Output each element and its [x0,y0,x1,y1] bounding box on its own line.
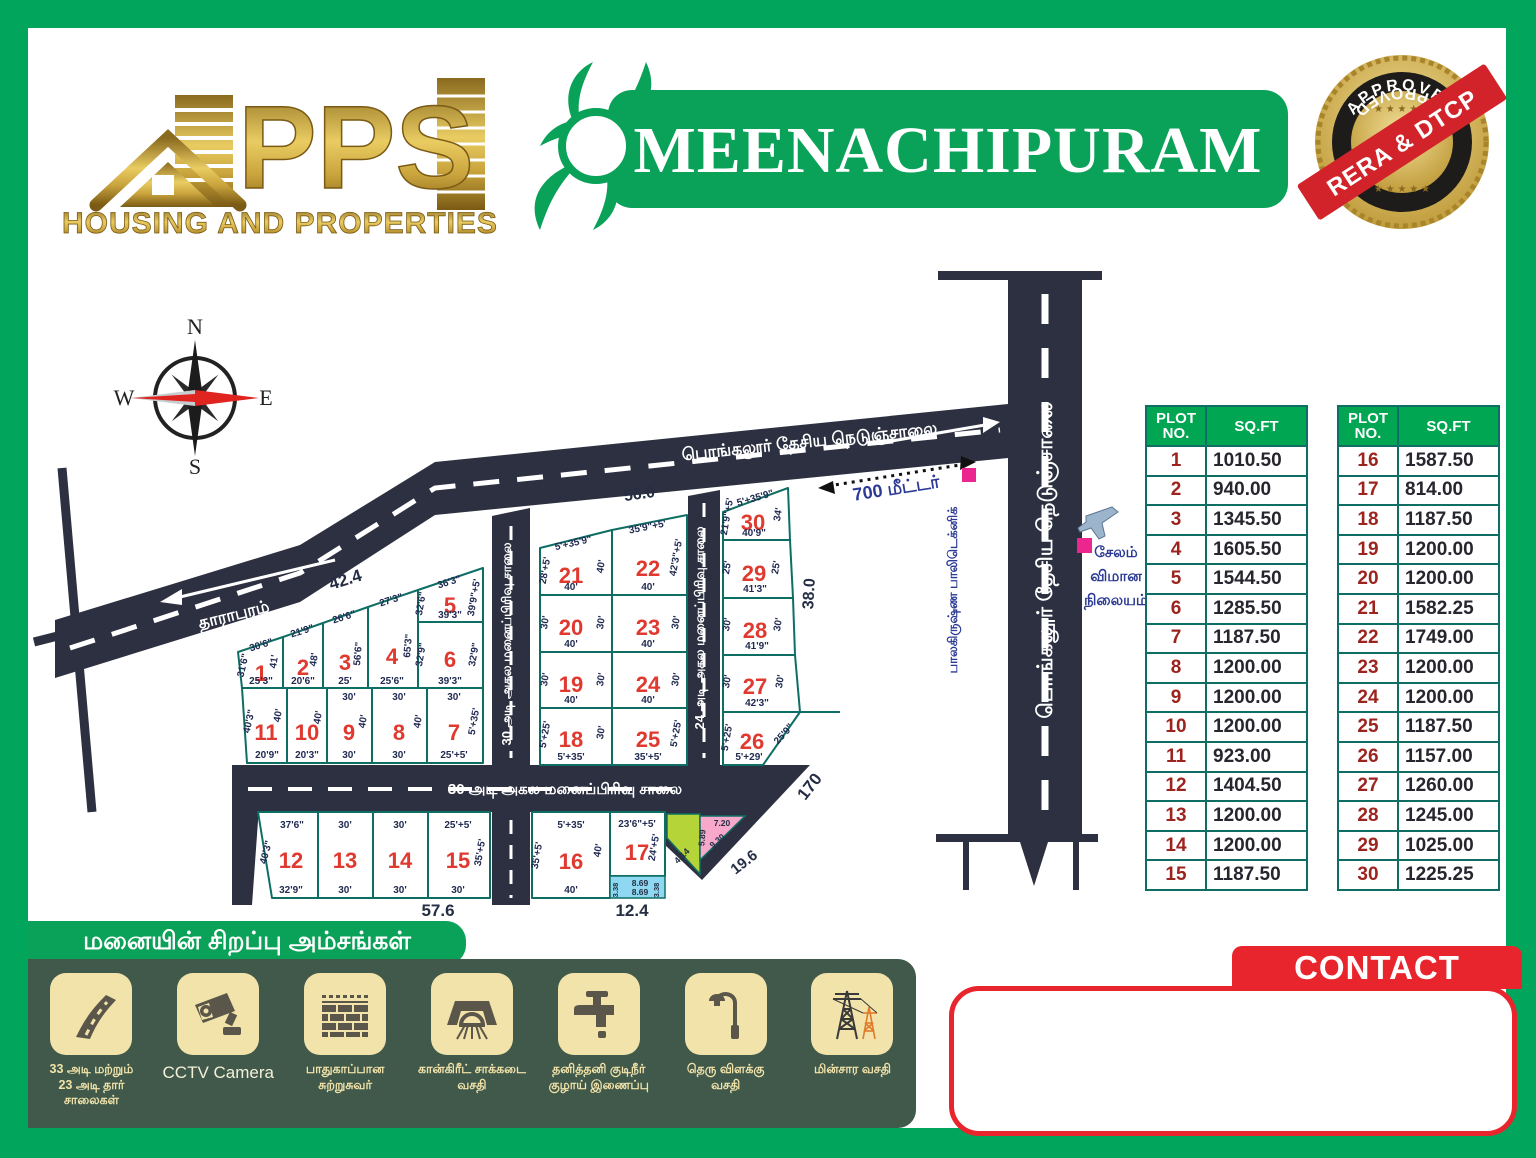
feature-drainage: கான்கிரீட் சாக்கடை வசதி [411,973,533,1093]
table-row: 191200.00 [1338,535,1499,565]
sqft-cell: 1200.00 [1398,564,1499,594]
project-title: MEENACHIPURAM [634,114,1263,187]
plot-dimension: 30' [338,885,352,896]
poster-canvas: PPS HOUSING AND PROPERTIES MEENACHIPURAM… [28,28,1506,1128]
table-row: 81200.00 [1146,653,1307,683]
airport-label-3: நிலையம் [1083,592,1148,610]
plot-no-cell: 30 [1338,860,1398,890]
plot-dimension: 30' [392,750,406,761]
table-row: 211582.25 [1338,594,1499,624]
sqft-cell: 1200.00 [1206,683,1307,713]
plot-dimension: 34' [772,507,785,522]
table-header: SQ.FT [1206,406,1307,446]
marker-pink [1077,538,1092,553]
table-row: 41605.50 [1146,535,1307,565]
plot-dimension: 25'6" [380,676,404,687]
plot-no-cell: 22 [1338,624,1398,654]
sqft-cell: 1587.50 [1398,446,1499,476]
feature-label: தனித்தனி குடிநீர் குழாய் இணைப்பு [549,1062,649,1093]
table-row: 71187.50 [1146,624,1307,654]
plot-dimension: 30' [342,692,356,703]
table-row: 251187.50 [1338,712,1499,742]
table-row: 141200.00 [1146,831,1307,861]
plot-dimension: 20'3" [295,750,319,761]
plot-number: 20 [559,615,583,640]
compass-s: S [189,454,201,479]
plot-dimension: 40' [312,710,325,725]
compass-e: E [259,385,272,410]
feature-wall: பாதுகாப்பான சுற்றுசுவர் [284,973,406,1093]
sqft-cell: 1260.00 [1398,772,1499,802]
table-row: 11010.50 [1146,446,1307,476]
sqft-cell: 1187.50 [1398,712,1499,742]
drainage-icon [431,973,513,1055]
table-row: 241200.00 [1338,683,1499,713]
feature-roads: 33 அடி மற்றும் 23 அடி தார் சாலைகள் [30,973,152,1109]
plot-no-cell: 28 [1338,801,1398,831]
logo-tagline: HOUSING AND PROPERTIES [62,207,498,240]
plot-dimension: 41'9" [745,641,769,652]
plot-dimension: 40' [564,639,578,650]
sqft-cell: 1187.50 [1206,860,1307,890]
airport-label-2: விமான [1090,568,1142,585]
marker-pink [962,468,976,482]
feature-label: கான்கிரீட் சாக்கடை வசதி [418,1062,526,1093]
plot-number: 9 [343,720,355,745]
table-row: 61285.50 [1146,594,1307,624]
plot-number: 24 [636,672,661,697]
plot-dimension: 25'+5' [440,750,467,761]
road24-label: 24 அடி அகல மனைப்பிரிவு சாலை [692,526,708,729]
plot-number: 16 [559,849,583,874]
sqft-cell: 1245.00 [1398,801,1499,831]
plot-dimension: 40' [564,582,578,593]
plot-no-cell: 11 [1146,742,1206,772]
electric-tower-icon [811,973,893,1055]
contact-details-box [949,986,1517,1136]
plot-number: 7 [448,720,460,745]
distance-label: 700 மீட்டர் [851,471,941,505]
feature-label: பாதுகாப்பான சுற்றுசுவர் [306,1062,384,1093]
plot-number: 28 [743,618,767,643]
plot-no-cell: 12 [1146,772,1206,802]
compass-n: N [187,314,203,339]
feature-water: தனித்தனி குடிநீர் குழாய் இணைப்பு [538,973,660,1093]
plot-dimension: 40' [564,695,578,706]
sqft-cell: 1025.00 [1398,831,1499,861]
feature-label: 33 அடி மற்றும் 23 அடி தார் சாலைகள் [30,1062,152,1109]
plot-area-table-1: PLOT NO.SQ.FT11010.502940.0031345.504160… [1145,405,1308,891]
plot-dimension: 30' [451,885,465,896]
plot-no-cell: 13 [1146,801,1206,831]
plot-dimension: 23'6"+5' [618,819,656,830]
table-row: 31345.50 [1146,505,1307,535]
sqft-cell: 1605.50 [1206,535,1307,565]
plot-dimension: 40' [595,559,608,574]
strip-dim: 3.38 [652,883,661,898]
compound-wall-icon [304,973,386,1055]
sqft-cell: 1200.00 [1206,712,1307,742]
feature-label: மின்சார வசதி [814,1062,891,1078]
vertical-highway-label: பொங்கலூர் தேசிய நெடுஞ்சாலை [1034,401,1060,718]
plot-dimension: 39'3" [438,610,462,621]
sqft-cell: 940.00 [1206,476,1307,506]
plot-dimension: 40' [592,843,605,858]
strip-dim: 3.38 [611,883,620,898]
table-row: 181187.50 [1338,505,1499,535]
plot-no-cell: 16 [1338,446,1398,476]
plot-dimension: 30' [595,672,608,687]
plot-no-cell: 20 [1338,564,1398,594]
plot-no-cell: 9 [1146,683,1206,713]
measure-56-0: 56.0 [623,484,656,505]
table-row: 131200.00 [1146,801,1307,831]
plot-area-table-2: PLOT NO.SQ.FT161587.5017814.00181187.501… [1337,405,1500,891]
plot-dimension: 5'+35' [557,752,584,763]
table-row: 151187.50 [1146,860,1307,890]
table-row: 161587.50 [1338,446,1499,476]
plot-no-cell: 5 [1146,564,1206,594]
plot-number: 8 [393,720,405,745]
sqft-cell: 1285.50 [1206,594,1307,624]
plot-no-cell: 2 [1146,476,1206,506]
sqft-cell: 1225.25 [1398,860,1499,890]
plot-dimension: 40' [641,582,655,593]
sqft-cell: 1200.00 [1206,831,1307,861]
plot-dimension: 40' [357,714,370,729]
left-road-stub [232,765,262,905]
measure-19-6: 19.6 [727,847,760,878]
table-row: 11923.00 [1146,742,1307,772]
sqft-cell: 1345.50 [1206,505,1307,535]
polytechnic-label: பாலகிருஷ்ண பாலிடெக்னிக் [945,506,961,674]
plot-no-cell: 6 [1146,594,1206,624]
plot-dimension: 25'3" [249,676,273,687]
plot-number: 12 [279,848,303,873]
table-row: 231200.00 [1338,653,1499,683]
table-row: 91200.00 [1146,683,1307,713]
plot-dimension: 65'3" [402,633,415,658]
table-row: 291025.00 [1338,831,1499,861]
features-panel: 33 அடி மற்றும் 23 அடி தார் சாலைகள் CCTV … [28,959,916,1128]
plot-dimension: 40' [641,639,655,650]
sqft-cell: 1582.25 [1398,594,1499,624]
plot-dimension: 39'3" [438,676,462,687]
table-row: 261157.00 [1338,742,1499,772]
road30-left-label: 30 அடி அகல மனைப்பிரிவு சாலை [499,542,515,745]
measure-12-4: 12.4 [615,901,649,920]
plot-no-cell: 8 [1146,653,1206,683]
sqft-cell: 1200.00 [1206,653,1307,683]
plot-number: 19 [559,672,583,697]
plot-dimension: 40' [412,714,425,729]
wedge-green [667,814,700,874]
plot-dimension: 48' [308,652,321,667]
plot-dimension: 30' [595,725,608,740]
feature-streetlight: தெரு விளக்கு வசதி [665,973,787,1093]
measure-38-0: 38.0 [800,578,819,610]
plot-dimension: 40' [272,708,285,723]
plot-no-cell: 21 [1338,594,1398,624]
plot-number: 15 [446,848,470,873]
table-row: 221749.00 [1338,624,1499,654]
sqft-cell: 1404.50 [1206,772,1307,802]
plot-no-cell: 19 [1338,535,1398,565]
plot-dimension: 25' [338,676,352,687]
plot-no-cell: 4 [1146,535,1206,565]
plot-no-cell: 27 [1338,772,1398,802]
plot-dimension: 30' [539,672,552,687]
plot-dimension: 41' [268,654,281,669]
sqft-cell: 1749.00 [1398,624,1499,654]
feature-power: மின்சார வசதி [791,973,913,1078]
sqft-cell: 1200.00 [1206,801,1307,831]
sqft-cell: 923.00 [1206,742,1307,772]
plot-no-cell: 14 [1146,831,1206,861]
plot-dimension: 35'+5' [634,752,661,763]
sqft-cell: 814.00 [1398,476,1499,506]
plot-dimension: 56'6" [352,641,365,666]
logo-text: PPS [238,82,474,214]
plot-number: 6 [444,647,456,672]
plot-dimension: 25'+5' [444,820,471,831]
airplane-icon [1078,507,1118,539]
pps-logo: PPS HOUSING AND PROPERTIES [62,60,498,240]
plot-number: 27 [743,674,767,699]
plot-dimension: 40' [564,885,578,896]
plot-no-cell: 17 [1338,476,1398,506]
sqft-cell: 1010.50 [1206,446,1307,476]
feature-cctv: CCTV Camera [157,973,279,1083]
table-row: 201200.00 [1338,564,1499,594]
sqft-cell: 1200.00 [1398,683,1499,713]
feature-label: தெரு விளக்கு வசதி [687,1062,764,1093]
plot-number: 29 [742,561,766,586]
road-icon [50,973,132,1055]
plot-dimension: 30' [721,617,734,632]
plot-number: 3 [339,650,351,675]
plot-dimension: 30' [670,672,683,687]
table-row: 17814.00 [1338,476,1499,506]
table-row: 51544.50 [1146,564,1307,594]
water-tap-icon [558,973,640,1055]
plot-dimension: 30' [342,750,356,761]
plot-no-cell: 23 [1338,653,1398,683]
plot-no-cell: 15 [1146,860,1206,890]
plot-dimension: 30' [447,692,461,703]
feature-label: CCTV Camera [163,1062,274,1083]
street-light-icon [685,973,767,1055]
plot-no-cell: 24 [1338,683,1398,713]
plot-dimension: 25' [770,560,783,575]
plot-dimension: 32'9" [279,885,303,896]
plot-no-cell: 1 [1146,446,1206,476]
badge-stars-bottom: ★ ★ ★ ★ ★ [1374,184,1430,195]
plot-dimension: 42'3" [745,698,769,709]
plot-dimension: 30' [539,615,552,630]
strip-dim: 8.69 [632,887,649,897]
plot-dimension: 30' [721,674,734,689]
airport-label-1: சேலம் [1094,544,1137,561]
plot-number: 13 [333,848,357,873]
plot-dimension: 30' [774,674,787,689]
contact-header: CONTACT [1232,946,1522,989]
approval-badge: APPROVED APPROVED ★ ★ ★ ★ ★ ★ ★ ★ ★ ★ RE… [1297,55,1506,229]
plot-number: 11 [254,720,277,745]
plot-no-cell: 26 [1338,742,1398,772]
title-banner: MEENACHIPURAM [535,62,1288,230]
table-header: PLOT NO. [1338,406,1398,446]
table-header: SQ.FT [1398,406,1499,446]
plot-dimension: 25' [721,560,734,575]
plot-number: 17 [625,840,649,865]
sqft-cell: 1157.00 [1398,742,1499,772]
plot-dimension: 41'3" [743,584,767,595]
wedge-dim: 7.20 [714,818,731,828]
plot-no-cell: 7 [1146,624,1206,654]
plot-number: 4 [386,644,399,669]
table-row: 2940.00 [1146,476,1307,506]
plot-dimension: 30' [338,820,352,831]
sqft-cell: 1200.00 [1398,535,1499,565]
measure-57-6: 57.6 [421,901,454,920]
road30-bottom-label: 30 அடி அகல மனைப்பிரிவு சாலை [448,781,682,798]
cctv-camera-icon [177,973,259,1055]
compass-icon: N E S W [114,314,273,479]
sqft-cell: 1200.00 [1398,653,1499,683]
plot-no-cell: 3 [1146,505,1206,535]
plot-no-cell: 29 [1338,831,1398,861]
plot-dimension: 20'9" [255,750,279,761]
plot-number: 25 [636,727,660,752]
plot-dimension: 30' [393,820,407,831]
plot-dimension: 37'6" [280,820,304,831]
table-header: PLOT NO. [1146,406,1206,446]
plot-number: 26 [740,729,764,754]
plot-no-cell: 25 [1338,712,1398,742]
plot-no-cell: 10 [1146,712,1206,742]
table-row: 271260.00 [1338,772,1499,802]
plot-dimension: 30' [772,617,785,632]
sqft-cell: 1544.50 [1206,564,1307,594]
sqft-cell: 1187.50 [1398,505,1499,535]
plot-no-cell: 18 [1338,505,1398,535]
compass-w: W [114,385,135,410]
table-row: 301225.25 [1338,860,1499,890]
plot-dimension: 30' [670,615,683,630]
plot-dimension: 30' [392,692,406,703]
plot-dimension: 20'6" [291,676,315,687]
sqft-cell: 1187.50 [1206,624,1307,654]
table-row: 281245.00 [1338,801,1499,831]
wedge-dim: 5.89 [696,829,707,847]
plot-dimension: 30' [393,885,407,896]
plot-number: 18 [559,727,583,752]
plot-dimension: 30' [595,615,608,630]
plot-dimension: 40'9" [742,528,766,539]
plot-number: 23 [636,615,660,640]
plot-dimension: 40' [641,695,655,706]
plot-dimension: 5'+29' [735,752,762,763]
plot-number: 22 [636,556,660,581]
table-row: 121404.50 [1146,772,1307,802]
plot-number: 14 [388,848,413,873]
plot-dimension: 5'+35' [557,820,584,831]
table-row: 101200.00 [1146,712,1307,742]
